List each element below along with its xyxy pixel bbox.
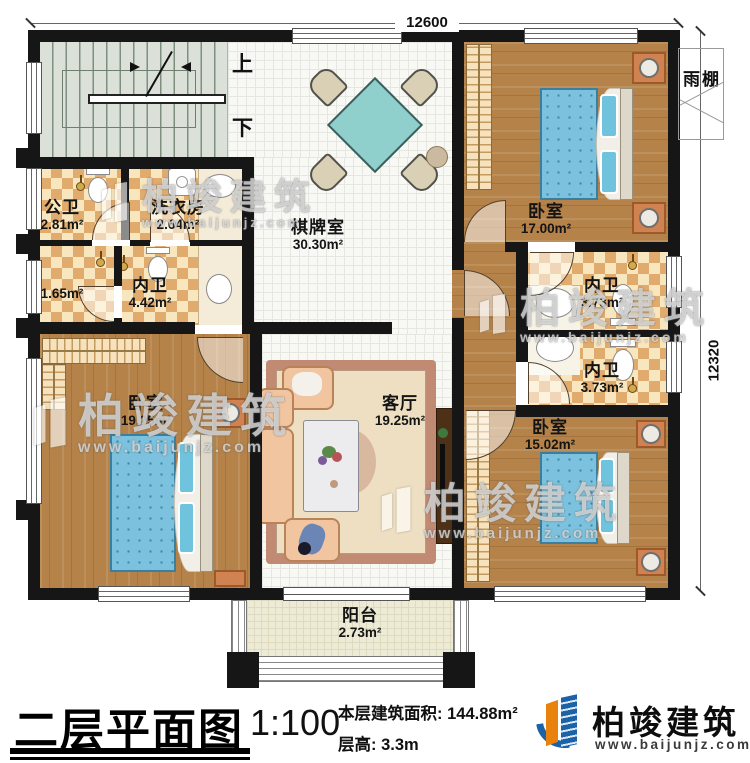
- window-bedroomse-bottom: [494, 586, 646, 602]
- label-public-bath: 公卫 2.81m²: [41, 198, 84, 232]
- wall-bath-row-a: [40, 240, 92, 246]
- wardrobe-sw-top: [42, 338, 146, 364]
- wall-pier-1: [16, 148, 28, 168]
- coffee-table: [303, 420, 359, 512]
- floor-area-line: 本层建筑面积: 144.88m²: [338, 700, 518, 724]
- dimension-right-value: 12320: [705, 326, 724, 396]
- bed-sw-mattress: [110, 434, 176, 572]
- label-bedroom-se: 卧室 15.02m²: [525, 418, 575, 452]
- stair-handrail: [88, 94, 226, 104]
- nightstand-ne-1: [632, 52, 666, 84]
- stairs-up-label: 上: [232, 48, 253, 78]
- floor-height-value: 3.3m: [381, 736, 419, 754]
- sink-master-bath: [206, 274, 232, 304]
- nightstand-sw-2: [214, 570, 246, 587]
- floor-height-line: 层高: 3.3m: [338, 731, 419, 755]
- ceiling-lamp-closet: [96, 258, 105, 267]
- washing-machine-drum: [176, 176, 188, 188]
- window-publicbath: [26, 168, 42, 230]
- ceiling-lamp-bath-e1: [628, 261, 637, 270]
- bed-ne-headboard: [620, 88, 633, 200]
- floor-plan: 上 下: [0, 0, 750, 690]
- wall-living-hall: [452, 334, 464, 588]
- wall-gameroom-bedroomne: [452, 42, 464, 270]
- toilet-tank-e2: [610, 339, 636, 347]
- wall-gameroom-living: [242, 322, 392, 334]
- sofa-corner: [258, 388, 294, 428]
- rain-canopy: 雨棚: [678, 48, 724, 140]
- sofa-cushion-cloth: [292, 372, 322, 396]
- floor-area-label: 本层建筑面积:: [338, 705, 447, 723]
- wall-bedroomne-south-b: [575, 242, 680, 252]
- toilet-tank-e1: [610, 318, 636, 326]
- stair-arrow-right: [130, 62, 145, 72]
- logo-bar-blue: [561, 694, 577, 747]
- label-bath-e2: 内卫 3.73m²: [581, 361, 624, 395]
- floorplan-page: { "dims": { "top": "12600", "right": "12…: [0, 0, 750, 763]
- tv-screen: [440, 444, 445, 508]
- stairs-down-label: 下: [232, 112, 253, 142]
- title-underline-thin: [10, 757, 250, 760]
- bed-se-pillow-2: [599, 498, 615, 534]
- plan-scale: 1:100: [250, 702, 340, 744]
- wall-bath-row-c: [190, 240, 242, 246]
- sink-bath-e2: [536, 334, 574, 362]
- window-closet: [26, 260, 42, 314]
- ceiling-lamp-public-bath: [76, 182, 85, 191]
- wall-bathe2-south: [516, 405, 680, 417]
- balcony-rail-bottom: [247, 656, 453, 682]
- wardrobe-ne: [466, 44, 492, 190]
- nightstand-se-2: [636, 548, 666, 576]
- nightstand-ne-2: [632, 202, 666, 234]
- bed-se-headboard: [617, 452, 630, 544]
- toilet-tank-master: [146, 247, 170, 254]
- brand-website: www.baijunjz.com: [595, 737, 750, 752]
- balcony-column-right: [443, 652, 475, 688]
- toilet-tank-public: [86, 168, 110, 175]
- wall-bedroomsw-living: [250, 334, 262, 588]
- bed-se-mattress: [540, 452, 598, 544]
- canopy-line-2: [680, 99, 725, 123]
- dimension-top-value: 12600: [395, 13, 459, 32]
- window-bathe1: [666, 256, 682, 308]
- person-head: [298, 542, 311, 555]
- table-flower-purple: [318, 456, 327, 465]
- plant-stand: [426, 146, 448, 168]
- window-bedroomne-top: [524, 28, 638, 44]
- toilet-bowl-public: [88, 177, 108, 203]
- floor-area-value: 144.88m²: [447, 705, 518, 723]
- bed-se-pillow-1: [599, 458, 615, 494]
- label-bath-e1: 内卫 3.73m²: [581, 276, 624, 310]
- wall-bedroomne-south-a: [505, 242, 528, 252]
- wall-pier-2: [16, 234, 28, 254]
- wall-bath-row-b: [130, 240, 150, 246]
- wall-bath-block-east: [242, 157, 254, 334]
- label-bedroom-ne: 卧室 17.00m²: [521, 202, 571, 236]
- label-living: 客厅 19.25m²: [375, 394, 425, 428]
- nightstand-se-1: [636, 420, 666, 448]
- logo-bar-orange: [546, 700, 558, 746]
- balcony-sliding-door: [283, 587, 410, 601]
- window-gameroom-top: [292, 28, 402, 44]
- ceiling-lamp-bath-e2: [628, 384, 637, 393]
- window-bedroomsw-left: [26, 358, 42, 504]
- label-closet: 1.65m²: [41, 286, 84, 301]
- sink-laundry: [204, 174, 236, 198]
- bed-sw-pillow-1: [178, 442, 195, 494]
- bed-sw-pillow-2: [178, 502, 195, 554]
- window-stairwell: [26, 62, 42, 134]
- wall-bathblock-south: [28, 322, 195, 334]
- wall-stair-south: [28, 157, 254, 169]
- wardrobe-sw-left: [42, 364, 66, 410]
- dimension-line-top: [30, 23, 680, 24]
- table-cup: [330, 480, 338, 488]
- title-underline-thick: [10, 748, 250, 754]
- label-master-bath: 内卫 4.42m²: [129, 276, 172, 310]
- window-bathe2: [666, 341, 682, 393]
- wall-pier-3: [16, 318, 28, 338]
- floor-height-label: 层高:: [338, 736, 381, 754]
- label-gameroom: 棋牌室 30.30m²: [291, 218, 345, 252]
- label-bedroom-sw: 卧室 19.25m²: [121, 394, 171, 428]
- stair-arrow-left: [176, 62, 191, 72]
- wall-hall-baths: [516, 252, 528, 362]
- wall-hall-stub: [452, 318, 464, 334]
- window-bedroomsw-bottom: [98, 586, 190, 602]
- nightstand-sw-1: [214, 398, 246, 428]
- wall-between-baths: [528, 330, 668, 337]
- bed-ne-pillow-1: [600, 94, 618, 138]
- bed-ne-pillow-2: [600, 150, 618, 194]
- label-balcony: 阳台 2.73m²: [339, 606, 382, 640]
- label-laundry: 洗衣房 2.64m²: [151, 198, 205, 232]
- table-flower-red: [332, 452, 342, 462]
- bed-sw-headboard: [200, 434, 213, 572]
- wall-closet-bath-a: [114, 246, 122, 286]
- cabinet-plant: [438, 428, 448, 438]
- balcony-column-left: [227, 652, 259, 688]
- bed-ne-mattress: [540, 88, 598, 200]
- brand-logo-icon: [536, 692, 586, 756]
